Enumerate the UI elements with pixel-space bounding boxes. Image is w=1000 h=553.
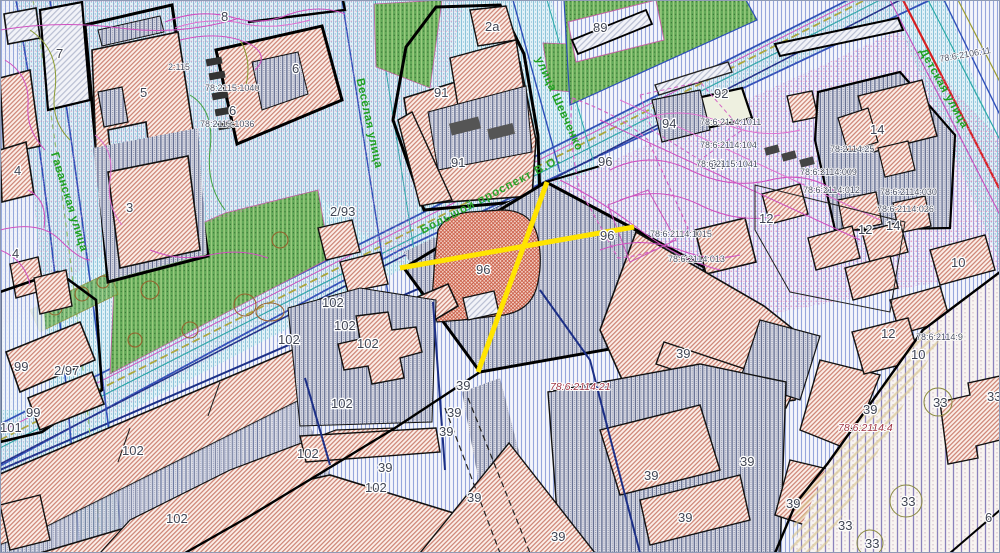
- svg-text:12: 12: [858, 222, 872, 237]
- svg-text:78:6:2115:1041: 78:6:2115:1041: [696, 159, 758, 169]
- svg-text:6: 6: [292, 61, 299, 76]
- svg-text:8: 8: [221, 9, 228, 24]
- svg-text:39: 39: [676, 346, 690, 361]
- svg-text:10: 10: [951, 255, 965, 270]
- svg-text:12: 12: [881, 326, 895, 341]
- svg-text:78:6:2114:4: 78:6:2114:4: [838, 422, 893, 434]
- svg-text:78:6:2114:9: 78:6:2114:9: [916, 332, 963, 342]
- svg-text:39: 39: [439, 424, 453, 439]
- svg-text:33: 33: [838, 518, 852, 533]
- svg-text:2а: 2а: [485, 19, 500, 34]
- svg-text:4: 4: [12, 246, 19, 261]
- svg-text:14: 14: [870, 122, 884, 137]
- svg-text:102: 102: [331, 396, 353, 411]
- svg-text:102: 102: [334, 318, 356, 333]
- svg-text:39: 39: [467, 490, 481, 505]
- svg-text:102: 102: [278, 332, 300, 347]
- svg-text:3: 3: [126, 200, 133, 215]
- svg-text:39: 39: [678, 510, 692, 525]
- svg-text:102: 102: [357, 336, 379, 351]
- svg-text:12: 12: [759, 211, 773, 226]
- svg-text:102: 102: [365, 480, 387, 495]
- svg-text:102: 102: [122, 443, 144, 458]
- svg-text:96: 96: [598, 154, 612, 169]
- svg-text:78:2114:25: 78:2114:25: [830, 144, 874, 154]
- svg-text:7: 7: [56, 46, 63, 61]
- svg-text:89: 89: [593, 20, 607, 35]
- svg-text:78:6:2114:013: 78:6:2114:013: [668, 254, 725, 264]
- svg-text:39: 39: [644, 468, 658, 483]
- svg-text:33: 33: [865, 536, 879, 551]
- svg-text:33: 33: [933, 395, 947, 410]
- svg-text:92: 92: [714, 86, 728, 101]
- svg-text:39: 39: [378, 460, 392, 475]
- svg-text:96: 96: [600, 228, 614, 243]
- svg-text:2/97: 2/97: [54, 363, 79, 378]
- svg-text:78:6:2114:104: 78:6:2114:104: [700, 140, 757, 150]
- svg-text:78:2115:1040: 78:2115:1040: [205, 83, 259, 93]
- svg-text:33: 33: [987, 389, 1000, 404]
- svg-text:39: 39: [786, 496, 800, 511]
- svg-text:39: 39: [456, 378, 470, 393]
- svg-text:39: 39: [863, 402, 877, 417]
- svg-text:99: 99: [14, 359, 28, 374]
- svg-text:91: 91: [451, 155, 465, 170]
- svg-text:39: 39: [740, 454, 754, 469]
- svg-text:6: 6: [985, 510, 992, 525]
- svg-text:2/93: 2/93: [330, 204, 355, 219]
- svg-text:102: 102: [322, 295, 344, 310]
- svg-text:102: 102: [166, 511, 188, 526]
- svg-text:78:6:2114:1011: 78:6:2114:1011: [700, 117, 761, 127]
- svg-text:78:6:2114:030: 78:6:2114:030: [880, 187, 937, 197]
- svg-text:91: 91: [434, 85, 448, 100]
- svg-text:78:6:2114:026: 78:6:2114:026: [877, 204, 934, 214]
- svg-text:33: 33: [901, 494, 915, 509]
- svg-text:78:6:2114:009: 78:6:2114:009: [800, 167, 857, 177]
- svg-text:4: 4: [14, 163, 21, 178]
- svg-text:39: 39: [551, 529, 565, 544]
- svg-text:99: 99: [26, 405, 40, 420]
- svg-text:78:6:2114:1015: 78:6:2114:1015: [650, 229, 712, 239]
- svg-text:94: 94: [662, 116, 676, 131]
- svg-text:5: 5: [140, 85, 147, 100]
- svg-text:78:6:2114:21: 78:6:2114:21: [550, 381, 611, 393]
- svg-text:6: 6: [229, 103, 236, 118]
- svg-text:102: 102: [297, 446, 319, 461]
- svg-text:2:115: 2:115: [168, 62, 190, 72]
- svg-text:14: 14: [886, 218, 900, 233]
- svg-text:78:2115:1036: 78:2115:1036: [200, 119, 254, 129]
- svg-text:101: 101: [0, 420, 22, 435]
- svg-text:96: 96: [476, 262, 490, 277]
- svg-text:78:6:2114:012: 78:6:2114:012: [803, 185, 860, 195]
- svg-text:10: 10: [911, 347, 925, 362]
- svg-text:39: 39: [447, 405, 461, 420]
